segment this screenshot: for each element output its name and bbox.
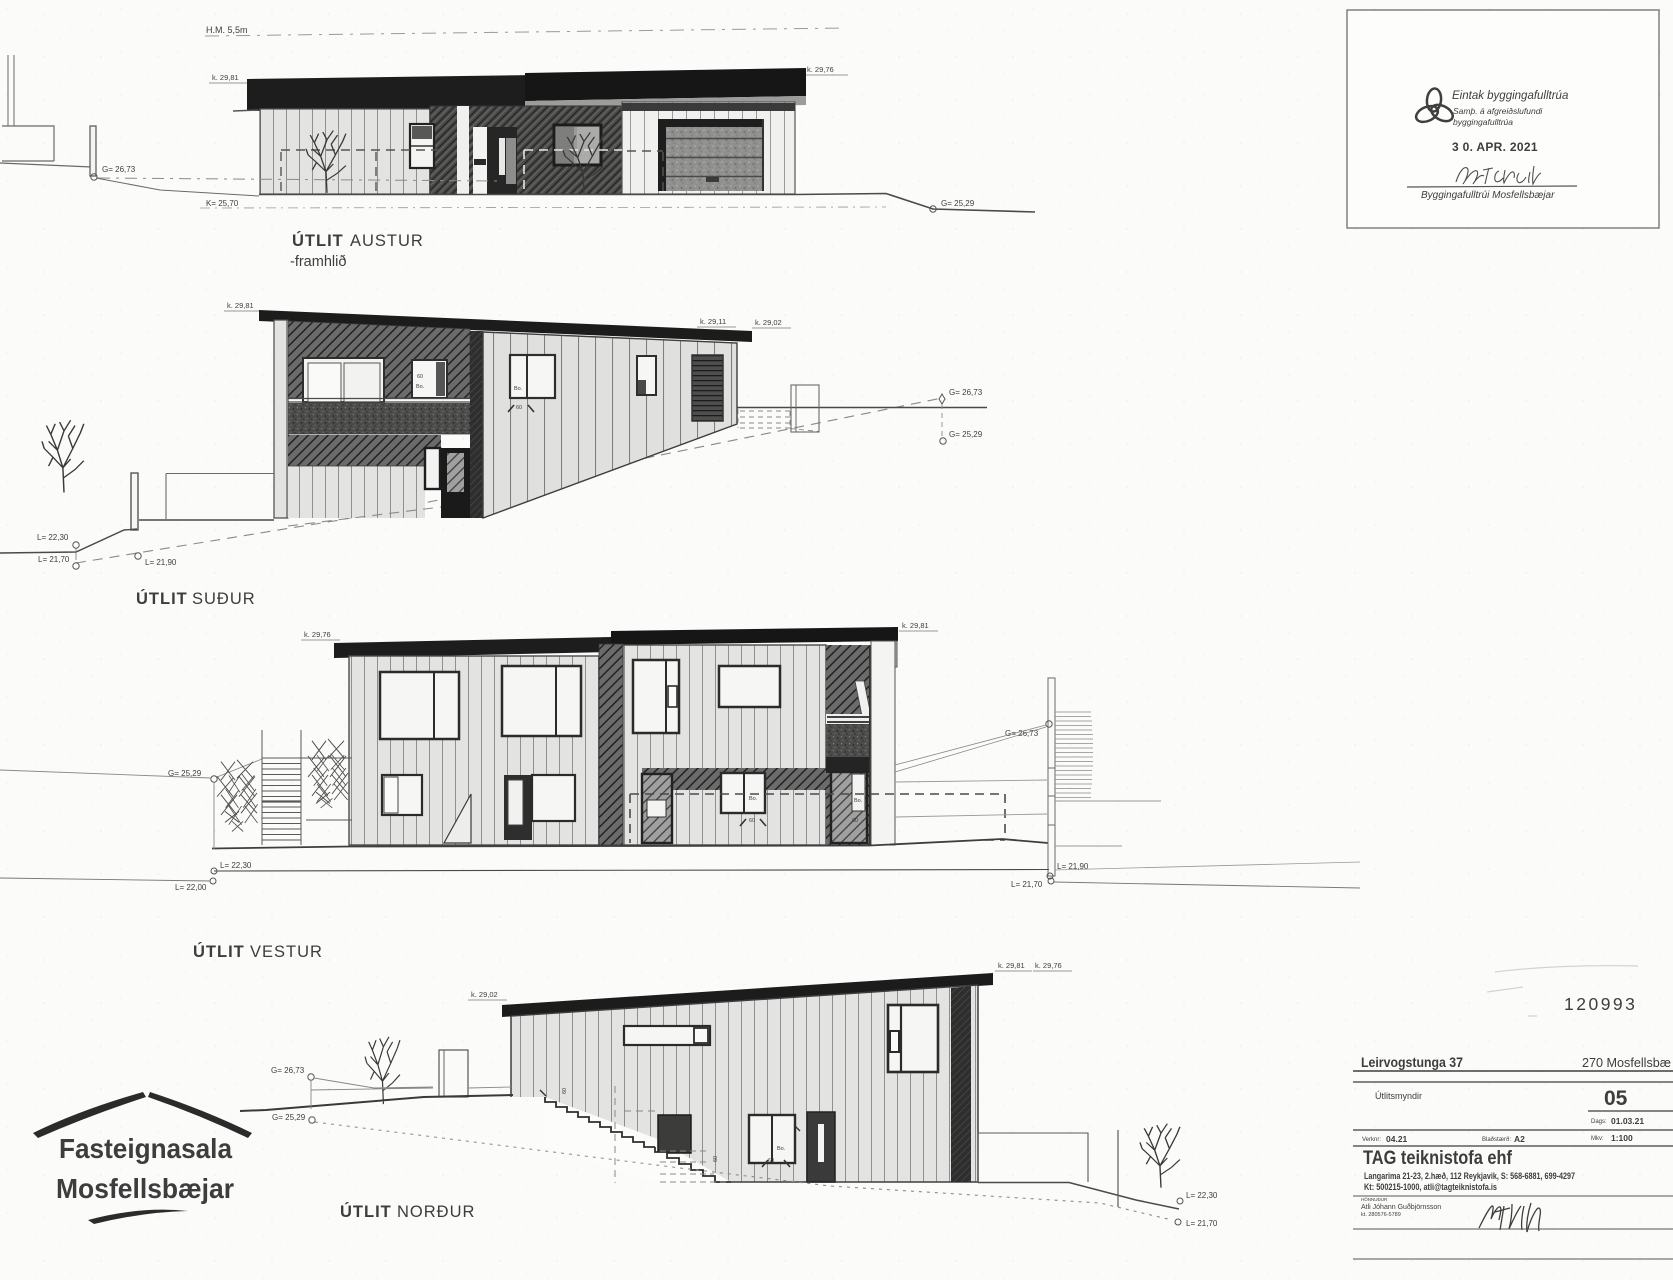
svg-text:-framhlið: -framhlið bbox=[290, 254, 346, 270]
svg-text:G= 25,29: G= 25,29 bbox=[272, 1113, 306, 1122]
svg-text:L= 22,30: L= 22,30 bbox=[37, 533, 69, 542]
svg-text:k. 29,11: k. 29,11 bbox=[700, 317, 726, 326]
svg-text:k. 29,76: k. 29,76 bbox=[807, 65, 834, 74]
svg-text:k. 29,81: k. 29,81 bbox=[227, 301, 254, 310]
svg-text:G= 26,73: G= 26,73 bbox=[102, 165, 136, 174]
svg-text:270 Mosfellsbæ: 270 Mosfellsbæ bbox=[1582, 1056, 1671, 1070]
svg-text:1:100: 1:100 bbox=[1611, 1133, 1633, 1143]
svg-text:60: 60 bbox=[713, 1156, 719, 1162]
svg-text:VESTUR: VESTUR bbox=[250, 943, 323, 961]
svg-text:G= 25,29: G= 25,29 bbox=[941, 199, 975, 208]
svg-text:L= 21,70: L= 21,70 bbox=[38, 555, 70, 564]
svg-text:k. 29,81: k. 29,81 bbox=[902, 621, 929, 630]
svg-text:A2: A2 bbox=[1514, 1134, 1525, 1144]
svg-text:Bo.: Bo. bbox=[514, 386, 523, 392]
svg-text:Bo.: Bo. bbox=[854, 798, 863, 804]
svg-text:NORÐUR: NORÐUR bbox=[397, 1203, 475, 1221]
svg-text:120993: 120993 bbox=[1564, 994, 1637, 1014]
svg-text:L= 21,90: L= 21,90 bbox=[145, 558, 177, 567]
svg-text:TAG teiknistofa ehf: TAG teiknistofa ehf bbox=[1363, 1148, 1513, 1169]
svg-text:k. 29,81: k. 29,81 bbox=[998, 961, 1025, 970]
svg-text:Blaðstærð:: Blaðstærð: bbox=[1482, 1136, 1511, 1143]
svg-text:Atli Jóhann Guðbjörnsson: Atli Jóhann Guðbjörnsson bbox=[1361, 1203, 1441, 1211]
svg-text:Útlitsmyndir: Útlitsmyndir bbox=[1375, 1091, 1422, 1101]
svg-text:k. 29,76: k. 29,76 bbox=[1035, 961, 1062, 970]
svg-text:04.21: 04.21 bbox=[1386, 1134, 1408, 1144]
svg-text:Mkv:: Mkv: bbox=[1591, 1136, 1604, 1142]
svg-text:byggingafulltrúa: byggingafulltrúa bbox=[1453, 117, 1513, 127]
svg-text:05: 05 bbox=[1604, 1087, 1628, 1110]
svg-text:k. 29,02: k. 29,02 bbox=[755, 318, 782, 327]
svg-text:L= 22,30: L= 22,30 bbox=[1186, 1191, 1218, 1200]
svg-text:3 0. APR. 2021: 3 0. APR. 2021 bbox=[1452, 140, 1538, 154]
svg-text:Bo.: Bo. bbox=[777, 1146, 786, 1152]
svg-text:SUÐUR: SUÐUR bbox=[192, 590, 256, 608]
svg-text:L= 21,70: L= 21,70 bbox=[1011, 880, 1043, 889]
svg-text:Langarima 21-23, 2.hæð, 112 Re: Langarima 21-23, 2.hæð, 112 Reykjavik, S… bbox=[1364, 1171, 1575, 1181]
svg-text:H.M. 5,5m: H.M. 5,5m bbox=[206, 25, 248, 35]
svg-text:L= 22,30: L= 22,30 bbox=[220, 861, 252, 870]
svg-text:K= 25,70: K= 25,70 bbox=[206, 199, 239, 208]
svg-text:Fasteignasala: Fasteignasala bbox=[59, 1133, 232, 1164]
svg-text:AUSTUR: AUSTUR bbox=[350, 232, 424, 250]
svg-text:Eintak byggingafulltrúa: Eintak byggingafulltrúa bbox=[1452, 90, 1568, 102]
svg-text:Leirvogstunga 37: Leirvogstunga 37 bbox=[1361, 1055, 1463, 1070]
svg-text:60: 60 bbox=[852, 818, 858, 824]
svg-text:Kt: 500215-1000, atli@tagteik: Kt: 500215-1000, atli@tagteiknistofa.is bbox=[1364, 1182, 1497, 1192]
svg-text:Dags:: Dags: bbox=[1591, 1119, 1607, 1125]
svg-text:L= 22,00: L= 22,00 bbox=[175, 883, 207, 892]
svg-text:Mosfellsbæjar: Mosfellsbæjar bbox=[56, 1173, 234, 1204]
svg-text:60: 60 bbox=[417, 374, 423, 380]
svg-text:01.03.21: 01.03.21 bbox=[1611, 1116, 1644, 1126]
svg-text:G= 26,73: G= 26,73 bbox=[949, 388, 983, 397]
svg-text:Samþ. á afgreiðslufundi: Samþ. á afgreiðslufundi bbox=[1453, 106, 1543, 116]
svg-text:G= 26,73: G= 26,73 bbox=[271, 1066, 305, 1075]
svg-text:Verknr:: Verknr: bbox=[1362, 1137, 1381, 1143]
svg-text:60: 60 bbox=[749, 818, 755, 824]
svg-text:60: 60 bbox=[516, 405, 522, 411]
svg-text:ÚTLIT: ÚTLIT bbox=[193, 942, 245, 961]
svg-text:ÚTLIT: ÚTLIT bbox=[292, 231, 344, 250]
svg-text:L= 21,70: L= 21,70 bbox=[1186, 1219, 1218, 1228]
svg-text:ÚTLIT: ÚTLIT bbox=[136, 589, 188, 608]
svg-text:Bo.: Bo. bbox=[749, 796, 758, 802]
svg-text:k. 29,76: k. 29,76 bbox=[304, 630, 331, 639]
svg-text:G= 25,29: G= 25,29 bbox=[949, 430, 983, 439]
svg-text:Bo.: Bo. bbox=[416, 384, 425, 390]
svg-text:HÖNNUÐUR: HÖNNUÐUR bbox=[1361, 1196, 1388, 1202]
svg-text:kt. 280576-5789: kt. 280576-5789 bbox=[1361, 1212, 1401, 1218]
svg-text:k. 29,02: k. 29,02 bbox=[471, 990, 498, 999]
svg-text:k. 29,81: k. 29,81 bbox=[212, 73, 239, 82]
svg-text:ÚTLIT: ÚTLIT bbox=[340, 1202, 392, 1221]
svg-text:Byggingafulltrúi Mosfellsbæjar: Byggingafulltrúi Mosfellsbæjar bbox=[1421, 190, 1555, 201]
svg-text:60: 60 bbox=[562, 1088, 568, 1094]
svg-text:60: 60 bbox=[768, 1158, 774, 1164]
